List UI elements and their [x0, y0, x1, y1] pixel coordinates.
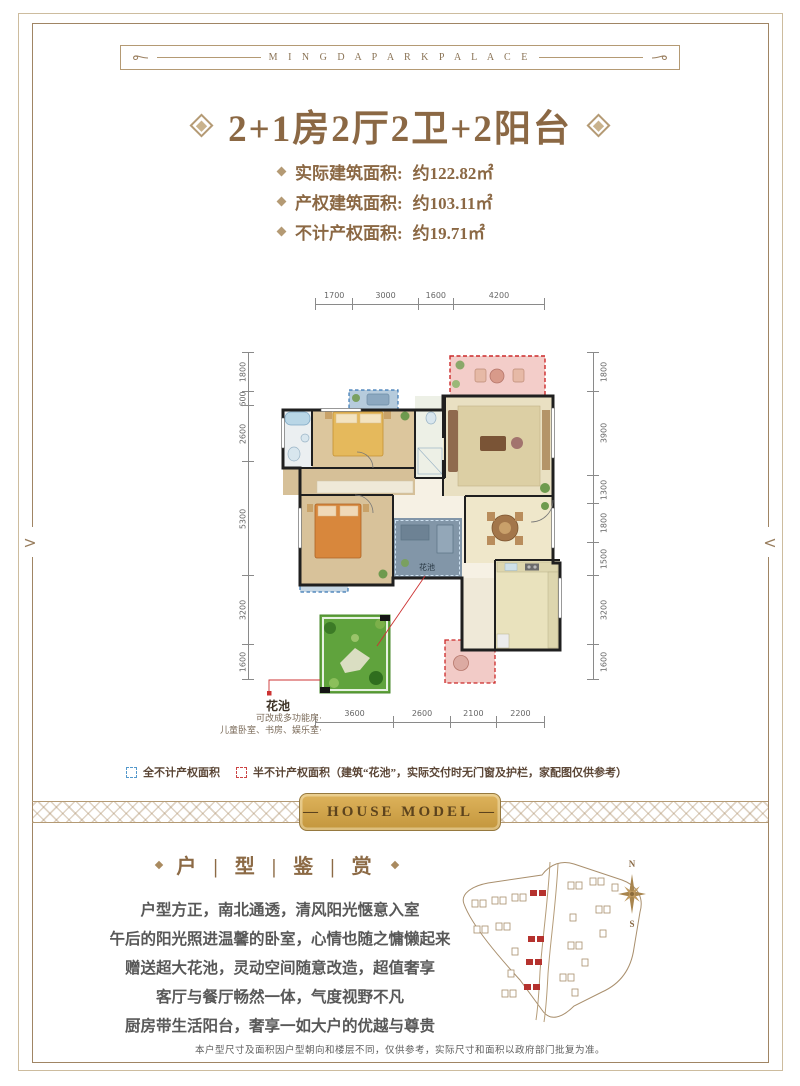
dim-segment: 1800: [587, 352, 599, 391]
dim-value: 1700: [316, 291, 352, 300]
dim-value: 2100: [451, 709, 496, 718]
compass-south-label: S: [629, 919, 634, 929]
master-bathroom: [283, 410, 312, 468]
section-diamond-icon: [155, 860, 163, 868]
compass-north-label: N: [629, 859, 636, 869]
dim-value: 3900: [600, 423, 609, 443]
dim-segment: 1600: [418, 298, 453, 310]
dim-value: 1600: [239, 652, 248, 672]
flourish-left-icon: [131, 53, 149, 63]
dim-segment: 3200: [242, 575, 254, 644]
floorplan-drawing: 花池: [255, 348, 575, 698]
dim-value: 1300: [600, 479, 609, 499]
site-road: [544, 864, 558, 1022]
dim-value: 4200: [454, 291, 544, 300]
dim-segment: 1600: [587, 644, 599, 680]
top-blue-balcony: [349, 390, 398, 410]
description-copy: 户型方正，南北通透，清风阳光惬意入室 午后的阳光照进温馨的卧室，心情也随之慵懒起…: [70, 896, 490, 1041]
spec-uncounted-area: 不计产权面积: 约19.71㎡: [278, 216, 493, 246]
copy-line: 户型方正，南北通透，清风阳光惬意入室: [70, 896, 490, 925]
dim-segment: 4200: [453, 298, 545, 310]
dining-room: [465, 496, 553, 563]
spec-property-area: 产权建筑面积: 约103.11㎡: [278, 186, 493, 216]
compass-icon: N S: [616, 859, 647, 929]
legend-blue-swatch-icon: [126, 767, 137, 778]
plaque-label: HOUSE MODEL: [327, 804, 473, 821]
dim-value: 2200: [497, 709, 544, 718]
hallway: [283, 468, 415, 495]
legend: 全不计产权面积 半不计产权面积（建筑“花池”，实际交付时无门窗及护栏，家配图仅供…: [126, 764, 627, 780]
spec-actual-area: 实际建筑面积: 约122.82㎡: [278, 156, 493, 186]
legend-blue-text: 全不计产权面积: [143, 764, 220, 780]
dim-chain-left: 18006002600530032001600: [238, 352, 254, 680]
dim-segment: 1700: [315, 298, 352, 310]
second-bathroom: [415, 396, 445, 478]
copy-line: 午后的阳光照进温馨的卧室，心情也随之慵懒起来: [70, 925, 490, 954]
dim-segment: 3000: [352, 298, 417, 310]
dim-value: 1800: [600, 513, 609, 533]
title-ornament-icon: [586, 113, 610, 137]
prev-arrow-icon[interactable]: >: [22, 527, 38, 557]
dim-segment: 1600: [242, 644, 254, 680]
note-line-1: 可改成多功能房·: [188, 712, 322, 724]
bullet-diamond-icon: [277, 196, 287, 206]
dim-segment: 1300: [587, 475, 599, 504]
dim-segment: 3900: [587, 391, 599, 475]
brand-text: M I N G D A P A R K P A L A C E: [269, 52, 532, 63]
dim-value: 3600: [316, 709, 393, 718]
section-diamond-icon: [390, 860, 398, 868]
dim-chain-top: 1700300016004200: [315, 294, 545, 310]
bullet-diamond-icon: [277, 226, 287, 236]
dim-segment: 2600: [242, 405, 254, 461]
spec-value: 约19.71㎡: [413, 219, 485, 244]
site-buildings-highlighted: [524, 890, 546, 990]
section-title: 户 | 型 | 鉴 | 赏: [176, 850, 377, 879]
legend-red-swatch-icon: [236, 767, 247, 778]
flower-pool-note: 可改成多功能房· 儿童卧室、书房、娱乐室·: [188, 712, 322, 736]
dim-segment: 2200: [496, 716, 545, 728]
dim-value: 3000: [353, 291, 417, 300]
brand-divider: [539, 57, 643, 58]
dim-value: 1600: [419, 291, 453, 300]
dim-value: 2600: [394, 709, 450, 718]
dim-segment: 3600: [315, 716, 393, 728]
dim-segment: 1800: [242, 352, 254, 391]
dim-value: 1500: [600, 549, 609, 569]
spec-label: 产权建筑面积:: [295, 189, 403, 214]
flower-pool-label: 花池: [419, 562, 435, 572]
dim-segment: 3200: [587, 575, 599, 644]
corridor: [462, 578, 495, 650]
copy-line: 厨房带生活阳台，奢享一如大户的优越与尊贵: [70, 1012, 490, 1041]
dim-value: 3200: [600, 600, 609, 620]
note-line-2: 儿童卧室、书房、娱乐室·: [188, 724, 322, 736]
legend-red-text: 半不计产权面积（建筑“花池”，实际交付时无门窗及护栏，家配图仅供参考）: [253, 764, 627, 780]
dim-value: 2600: [239, 423, 248, 443]
dim-value: 1800: [600, 362, 609, 382]
second-bedroom: [300, 495, 393, 585]
dim-segment: 2600: [393, 716, 450, 728]
house-model-plaque: — HOUSE MODEL —: [299, 793, 501, 831]
copy-line: 赠送超大花池，灵动空间随意改造，超值奢享: [70, 954, 490, 983]
dim-segment: 600: [242, 391, 254, 405]
brand-bar: M I N G D A P A R K P A L A C E: [120, 45, 680, 70]
spec-label: 不计产权面积:: [295, 219, 403, 244]
dim-value: 1800: [239, 362, 248, 382]
dim-value: 3200: [239, 600, 248, 620]
spec-value: 约122.82㎡: [413, 159, 494, 184]
title-ornament-icon: [190, 113, 214, 137]
flourish-right-icon: [651, 53, 669, 63]
dim-value: 600: [239, 391, 248, 406]
plant-icon: [401, 412, 410, 421]
flower-pool-area: 花池: [393, 518, 462, 578]
plaque-dash: —: [479, 804, 497, 821]
section-header: 户 | 型 | 鉴 | 赏: [77, 850, 477, 879]
copy-line: 客厅与餐厅畅然一体，气度视野不凡: [70, 983, 490, 1012]
dim-chain-right: 1800390013001800150032001600: [583, 352, 599, 680]
page-title: 2+1房2厅2卫+2阳台: [228, 98, 572, 152]
floorplan-poster-page: > < M I N G D A P A R K P A L A C E 2+1房…: [0, 0, 800, 1086]
title-row: 2+1房2厅2卫+2阳台: [0, 98, 800, 152]
garden-inset: [320, 615, 390, 693]
dim-value: 5300: [239, 508, 248, 528]
brand-divider: [157, 57, 261, 58]
next-arrow-icon[interactable]: <: [762, 527, 778, 557]
bullet-diamond-icon: [277, 166, 287, 176]
site-plan-map: N S: [450, 852, 670, 1037]
house-model-ribbon: — HOUSE MODEL —: [32, 792, 768, 830]
dim-segment: 2100: [450, 716, 496, 728]
dim-segment: 5300: [242, 461, 254, 575]
dim-chain-bottom: 3600260021002200: [315, 712, 545, 728]
north-balcony-pink: [450, 356, 545, 396]
callout-dot-icon: [267, 691, 272, 696]
kitchen: [495, 560, 560, 650]
living-room: [443, 396, 553, 496]
plant-icon: [540, 483, 550, 493]
area-specs: 实际建筑面积: 约122.82㎡ 产权建筑面积: 约103.11㎡ 不计产权面积…: [278, 156, 493, 246]
plaque-dash: —: [303, 804, 321, 821]
spec-label: 实际建筑面积:: [295, 159, 403, 184]
dim-segment: 1800: [587, 503, 599, 542]
master-bedroom: [312, 410, 415, 468]
spec-value: 约103.11㎡: [413, 189, 493, 214]
dim-segment: 1500: [587, 542, 599, 575]
footer-disclaimer: 本户型尺寸及面积因户型朝向和楼层不同，仅供参考，实际尺寸和面积以政府部门批复为准…: [0, 1042, 800, 1056]
dim-value: 1600: [600, 652, 609, 672]
